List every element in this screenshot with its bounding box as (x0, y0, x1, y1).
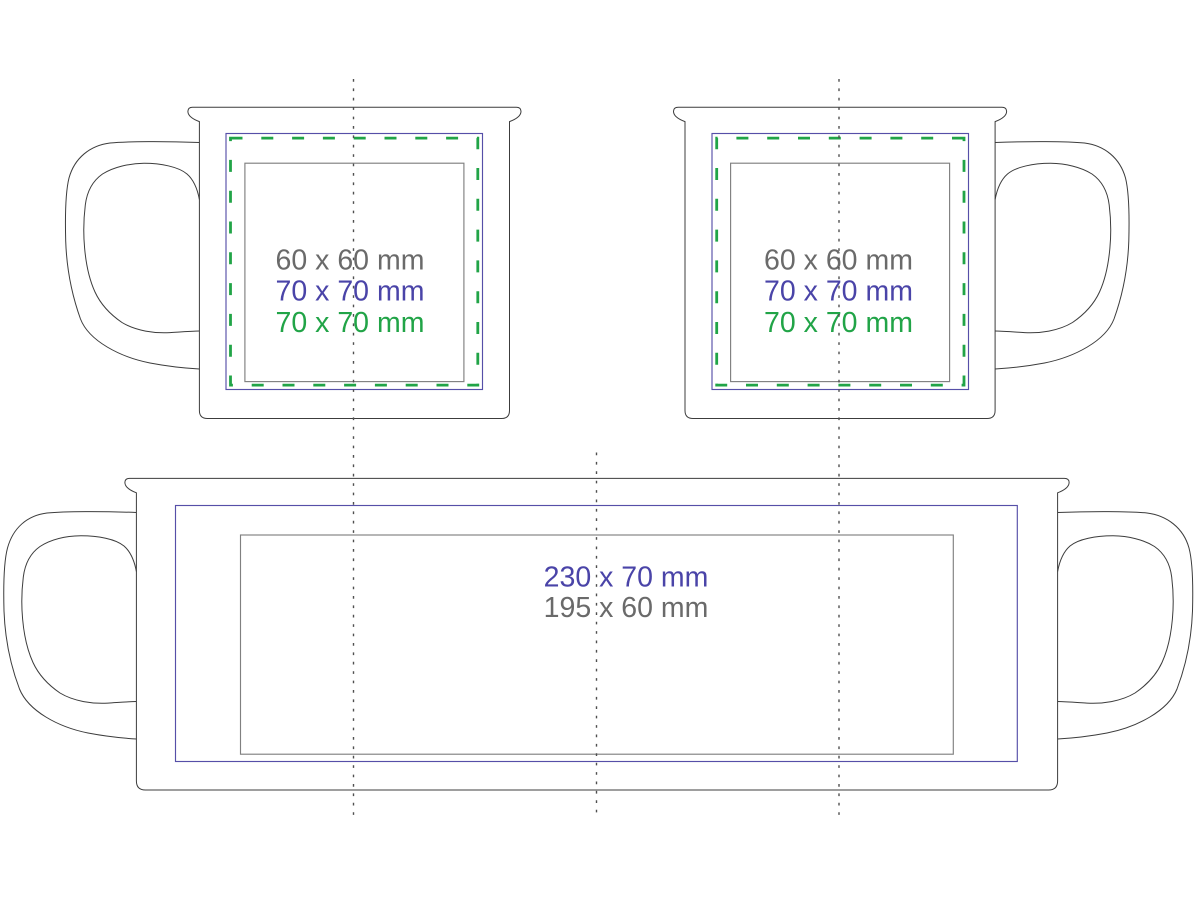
svg-text:60 x 60 mm: 60 x 60 mm (276, 245, 425, 277)
svg-text:70 x 70 mm: 70 x 70 mm (276, 307, 425, 339)
svg-text:195 x 60 mm: 195 x 60 mm (544, 592, 709, 624)
svg-text:230 x 70 mm: 230 x 70 mm (544, 562, 709, 594)
svg-text:70 x 70 mm: 70 x 70 mm (764, 276, 913, 308)
svg-text:70 x 70 mm: 70 x 70 mm (276, 276, 425, 308)
